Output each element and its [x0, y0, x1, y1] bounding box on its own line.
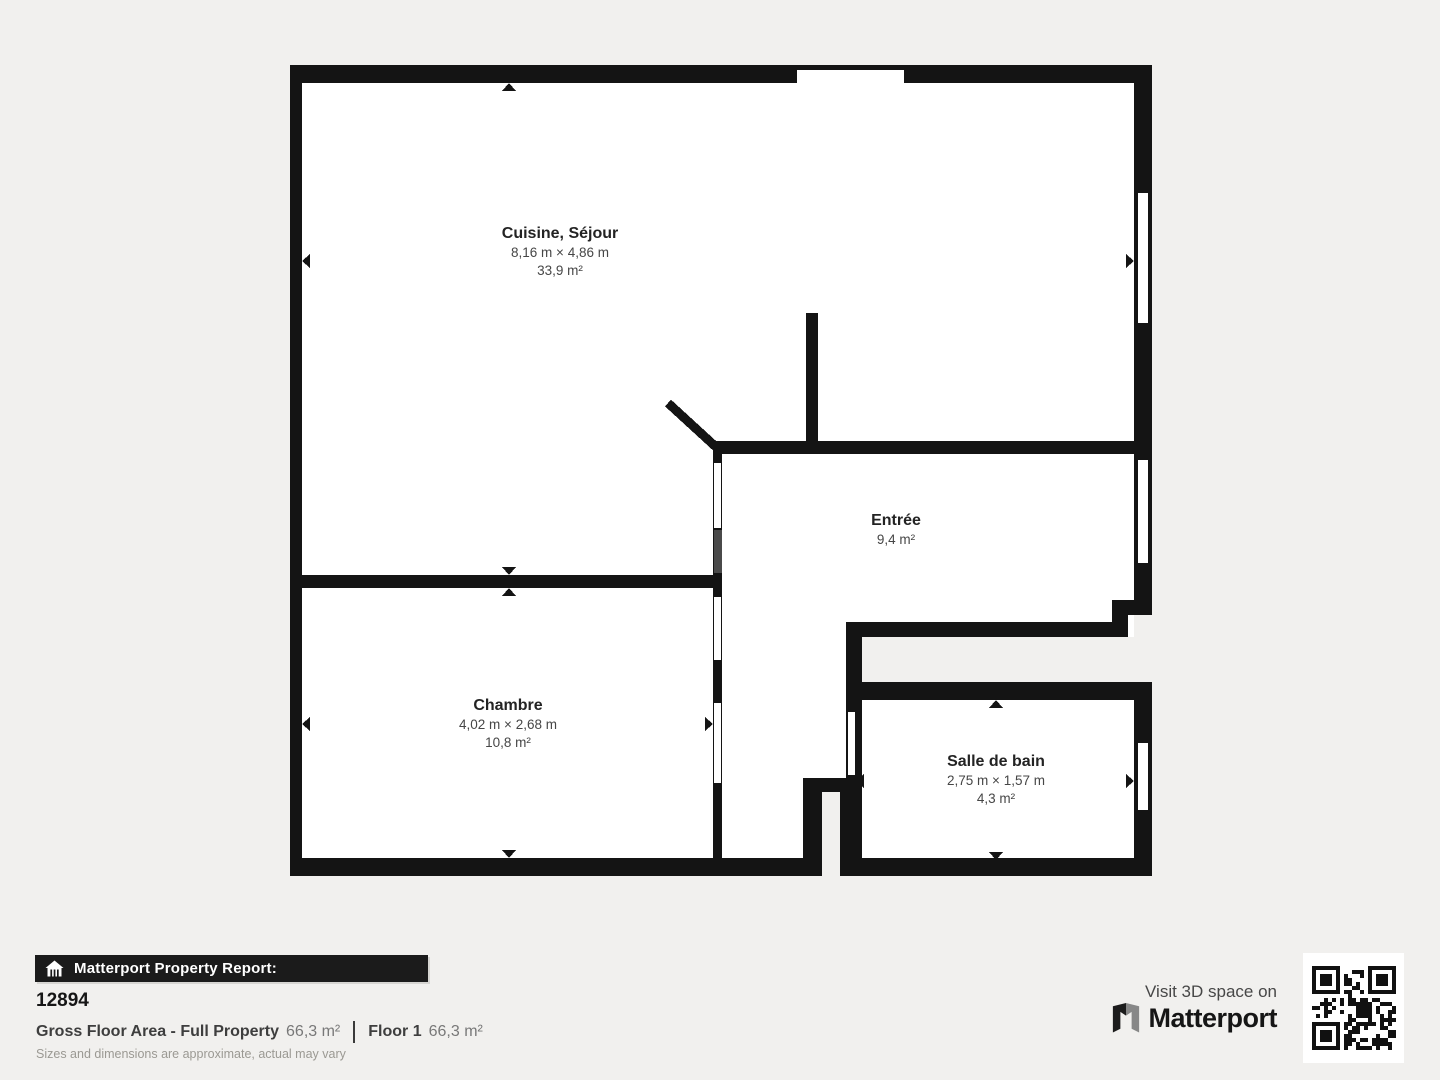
door-opening-entree-west	[714, 463, 721, 528]
qr-code-panel	[1303, 953, 1404, 1063]
report-title-bar: Matterport Property Report:	[35, 955, 428, 982]
wall-entry-alcove-top	[803, 778, 862, 792]
notch-right-wall-gap	[1134, 615, 1152, 682]
summary-divider	[353, 1021, 355, 1043]
wall-exterior-left	[290, 65, 302, 876]
wall-exterior-bottom	[290, 858, 1152, 876]
gross-floor-area-label: Gross Floor Area - Full Property	[36, 1023, 279, 1041]
qr-code	[1312, 966, 1396, 1050]
wall-exterior-top	[290, 65, 1152, 83]
wall-entry-alcove-right	[840, 792, 846, 876]
floor-value: 66,3 m²	[429, 1023, 483, 1041]
window-top-cuisine	[797, 70, 904, 83]
door-opening-chambre-upper	[714, 597, 721, 660]
wall-entry-alcove-left	[803, 792, 822, 876]
entry-door-opening	[822, 792, 840, 876]
floor-label: Floor 1	[368, 1023, 421, 1041]
wall-entree-bottom	[846, 622, 1128, 637]
wall-step-top	[1112, 600, 1152, 615]
floor-area-summary: Gross Floor Area - Full Property 66,3 m²…	[36, 1021, 483, 1043]
report-bar-label: Matterport Property Report:	[74, 960, 277, 977]
visit-3d-space-text: Visit 3D space on	[1145, 982, 1277, 1002]
matterport-floorplan-report-page: Cuisine, Séjour 8,16 m × 4,86 m 33,9 m² …	[0, 0, 1440, 1080]
window-right-entree	[1138, 460, 1148, 563]
matterport-logo-mark	[1111, 1002, 1141, 1034]
window-right-cuisine	[1138, 193, 1148, 323]
wall-entree-top	[717, 441, 1134, 454]
disclaimer-text: Sizes and dimensions are approximate, ac…	[36, 1047, 346, 1061]
matterport-logo: Matterport	[1111, 1002, 1278, 1034]
notch-between-entree-bath	[862, 637, 1134, 682]
wall-cuisine-chambre	[302, 575, 722, 588]
property-id: 12894	[36, 990, 89, 1012]
door-opening-chambre-lower	[714, 703, 721, 783]
house-scan-icon	[45, 960, 64, 977]
wall-cuisine-stub	[806, 313, 818, 444]
wall-bath-top	[846, 682, 1152, 700]
window-right-bath	[1138, 743, 1148, 810]
gross-floor-area-value: 66,3 m²	[286, 1023, 340, 1041]
floorplan	[0, 0, 1440, 1080]
door-leaf	[714, 530, 722, 573]
matterport-wordmark: Matterport	[1149, 1003, 1278, 1034]
door-opening-bath	[848, 712, 855, 775]
